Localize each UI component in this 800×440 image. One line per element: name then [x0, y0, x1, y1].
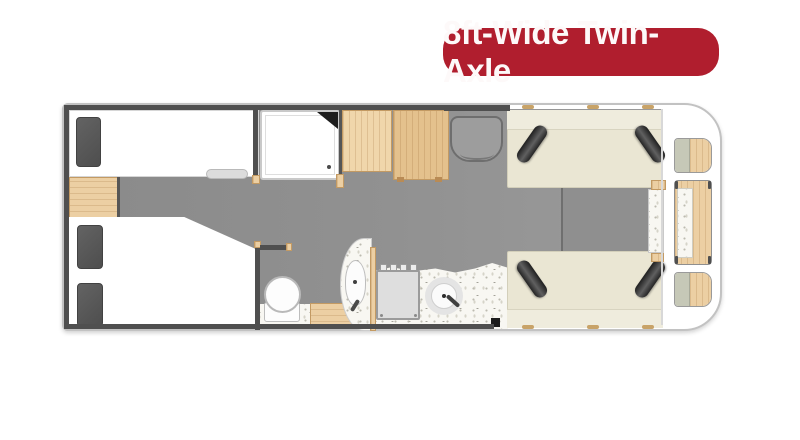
shower-wall — [253, 110, 258, 178]
badge-label: 8ft-Wide Twin-Axle — [443, 14, 719, 90]
cooker-hinge — [414, 314, 417, 317]
single-bed-pillow — [76, 117, 101, 167]
chest-bracket — [708, 256, 711, 264]
chest-bracket — [708, 181, 711, 189]
wall-bottom — [64, 324, 494, 329]
entrance-door — [450, 116, 503, 162]
wall-left — [64, 105, 69, 329]
window-latch — [587, 325, 599, 329]
front-chest — [674, 180, 712, 265]
shelf-upholstered-part — [675, 139, 690, 172]
toilet — [264, 276, 301, 313]
double-bed-pillow-1 — [77, 225, 103, 269]
window-latch — [642, 325, 654, 329]
cooker-knob — [390, 264, 397, 271]
cooker-hinge — [380, 314, 383, 317]
side-table-flap — [651, 180, 666, 190]
wardrobe-foot — [435, 177, 442, 182]
shelf-wood-top — [690, 139, 711, 172]
window-latch — [587, 105, 599, 109]
washroom-wall — [255, 245, 260, 330]
front-corner-shelf-bottom — [674, 272, 712, 307]
shower-drain — [327, 165, 331, 169]
front-bulkhead-line — [661, 109, 663, 325]
wardrobe-foot — [397, 177, 404, 182]
shelf-upholstered-part — [675, 273, 690, 306]
cooker-knob — [380, 264, 387, 271]
washroom-wall-top — [260, 245, 288, 250]
wardrobe-right — [393, 110, 449, 180]
cooker-hob — [376, 270, 420, 320]
chest-bracket — [675, 256, 678, 264]
floorplan-page: 8ft-Wide Twin-Axle — [0, 0, 800, 440]
wardrobe-left — [342, 110, 392, 172]
shelf-wood-top — [690, 273, 711, 306]
basin-drain — [353, 280, 357, 284]
model-badge: 8ft-Wide Twin-Axle — [443, 28, 719, 76]
nightstand — [69, 177, 118, 219]
bed-foot-step — [206, 169, 248, 179]
wall-above-door — [444, 105, 510, 111]
cooker-knob — [400, 264, 407, 271]
lounge-mid-table — [561, 177, 661, 261]
caravan-outline — [62, 103, 722, 331]
shower-wall-trim — [252, 175, 260, 184]
shower-door-trim — [336, 174, 344, 188]
chest-worktop — [677, 188, 693, 258]
chest-bracket — [675, 181, 678, 189]
window-latch — [522, 325, 534, 329]
window-latch — [642, 105, 654, 109]
window-latch — [522, 105, 534, 109]
front-corner-shelf-top — [674, 138, 712, 173]
washroom-door-trim — [286, 243, 292, 251]
nightstand-wall-edge — [117, 177, 120, 219]
door-arc — [460, 148, 494, 160]
double-bed-pillow-2 — [77, 283, 103, 327]
cooker-knob — [410, 264, 417, 271]
